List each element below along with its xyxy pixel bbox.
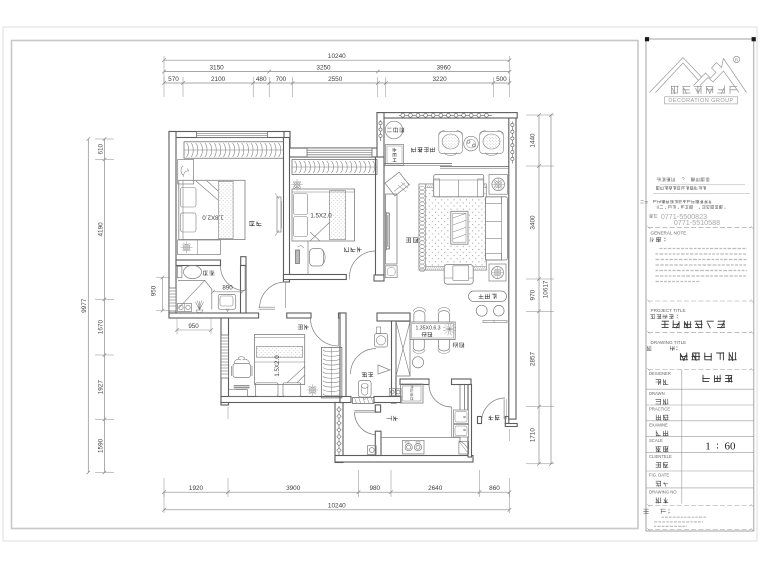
svg-text:1.5X2.0: 1.5X2.0	[274, 355, 281, 377]
svg-text:950: 950	[151, 285, 158, 296]
svg-text:60: 60	[725, 441, 737, 453]
svg-text:1.5X2.0: 1.5X2.0	[310, 213, 332, 220]
svg-text:950: 950	[188, 323, 199, 330]
svg-text:EXAMINE: EXAMINE	[649, 422, 668, 427]
svg-text:2640: 2640	[428, 485, 443, 492]
svg-text:610: 610	[97, 143, 104, 154]
svg-text:1920: 1920	[189, 485, 204, 492]
svg-text:700: 700	[276, 76, 287, 83]
svg-text:970: 970	[530, 289, 537, 300]
svg-text:2857: 2857	[530, 351, 537, 366]
svg-text:DRAWN: DRAWN	[649, 391, 665, 396]
svg-text:1590: 1590	[97, 438, 104, 453]
svg-text:9977: 9977	[81, 298, 88, 313]
svg-text:DRAWING TITLE: DRAWING TITLE	[651, 340, 687, 345]
svg-text:CLIENTELE: CLIENTELE	[649, 454, 672, 459]
svg-text:10617: 10617	[543, 280, 550, 298]
svg-text:10240: 10240	[328, 503, 346, 510]
svg-text:4190: 4190	[97, 222, 104, 237]
svg-text:FIG. DATE: FIG. DATE	[649, 473, 669, 478]
svg-text:DECORATION GROUP: DECORATION GROUP	[668, 98, 733, 104]
svg-text:1927: 1927	[97, 380, 104, 395]
svg-text::: :	[716, 441, 719, 452]
svg-text:DRAWING NO: DRAWING NO	[649, 490, 677, 495]
svg-text:3900: 3900	[286, 485, 301, 492]
svg-text:3960: 3960	[436, 64, 451, 71]
svg-text:DESIGNER: DESIGNER	[649, 371, 671, 376]
svg-text:3400: 3400	[530, 215, 537, 230]
svg-text:SCALE: SCALE	[649, 438, 663, 443]
svg-text:PROJECT TITLE: PROJECT TITLE	[651, 308, 686, 313]
svg-text:480: 480	[256, 76, 267, 83]
svg-text:890: 890	[222, 284, 233, 291]
svg-text:570: 570	[168, 76, 179, 83]
svg-text:3220: 3220	[432, 76, 447, 83]
svg-text:GENERAL NOTE: GENERAL NOTE	[651, 230, 687, 235]
svg-text:0771-5510588: 0771-5510588	[674, 218, 720, 227]
svg-text:1440: 1440	[530, 133, 537, 148]
svg-text:3150: 3150	[209, 64, 224, 71]
svg-text:1.8X2.0: 1.8X2.0	[202, 214, 224, 221]
svg-text:860: 860	[489, 485, 500, 492]
svg-text:980: 980	[369, 485, 380, 492]
svg-text:1.35X0.6.3: 1.35X0.6.3	[415, 326, 440, 332]
svg-text:10240: 10240	[328, 53, 346, 60]
svg-text:1670: 1670	[97, 320, 104, 335]
svg-text:3250: 3250	[316, 64, 331, 71]
svg-text:1710: 1710	[530, 428, 537, 443]
svg-text:1: 1	[705, 441, 711, 453]
svg-text:PRACTICE: PRACTICE	[649, 407, 670, 412]
svg-text:2550: 2550	[328, 76, 343, 83]
svg-text:2100: 2100	[211, 76, 226, 83]
svg-text:500: 500	[496, 76, 507, 83]
